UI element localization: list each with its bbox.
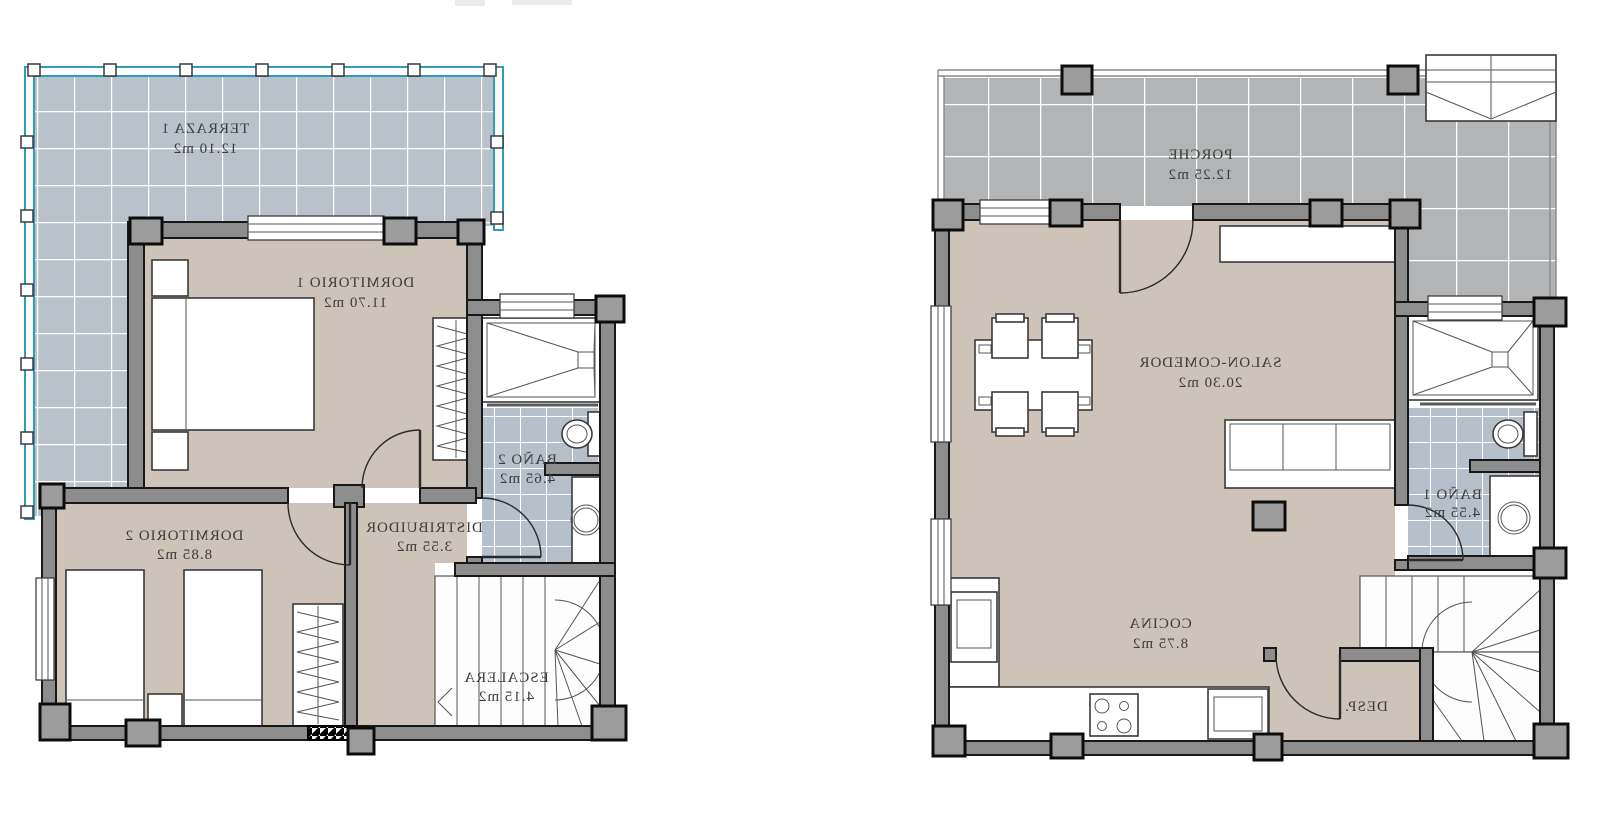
floorplan-sheet: TERRAZA 1 12.10 m2 DORMITORIO 1 11.70 m2… <box>0 0 1600 831</box>
shower-tray <box>482 318 600 402</box>
bathroom-2 <box>482 318 601 563</box>
fridge <box>951 592 997 662</box>
label-dormitorio-1-area: 11.70 m2 <box>323 295 387 311</box>
room-despensa <box>1395 652 1420 741</box>
label-dormitorio-2-area: 8.85 m2 <box>156 547 212 563</box>
hob <box>1090 694 1138 736</box>
porch-post <box>1062 66 1092 94</box>
single-bed <box>66 570 144 732</box>
ground-floor-plan: PORCHE 12.25 m2 SALON-COMEDOR 20.30 m2 B… <box>931 55 1568 760</box>
label-dormitorio-1-name: DORMITORIO 1 <box>296 275 415 291</box>
porch-post <box>1388 66 1418 94</box>
window <box>931 306 951 442</box>
nightstand <box>152 260 188 296</box>
wardrobe <box>293 604 343 726</box>
single-bed <box>184 570 262 732</box>
label-escalera-name: ESCALERA <box>463 670 549 686</box>
label-bano-1-name: BAÑO 1 <box>1422 487 1482 503</box>
window <box>500 294 574 318</box>
kitchen-sink <box>1208 689 1268 739</box>
sideboard <box>1220 226 1396 262</box>
entry-steps <box>1426 55 1556 121</box>
window <box>931 519 951 605</box>
label-bano-1-area: 4.55 m2 <box>1424 505 1480 521</box>
washbasin <box>1490 476 1540 556</box>
hall-corridor <box>357 563 435 726</box>
label-porche-area: 12.25 m2 <box>1168 167 1233 183</box>
label-terraza-1-area: 12.10 m2 <box>173 141 238 157</box>
label-cocina-name: COCINA <box>1128 616 1192 632</box>
column-marker <box>1253 502 1285 530</box>
window <box>1428 296 1502 320</box>
label-terraza-1-name: TERRAZA 1 <box>161 121 250 137</box>
sofa <box>1225 420 1395 488</box>
upper-floor-plan: TERRAZA 1 12.10 m2 DORMITORIO 1 11.70 m2… <box>21 64 626 754</box>
label-salon-comedor-name: SALON-COMEDOR <box>1138 355 1281 371</box>
label-distribuidor-area: 3.55 m2 <box>396 539 452 555</box>
window <box>36 578 54 680</box>
window <box>248 216 384 240</box>
double-bed <box>152 298 314 430</box>
label-distribuidor-name: DISTRIBUIDOR <box>365 520 483 536</box>
label-porche-name: PORCHE <box>1167 147 1232 163</box>
label-cocina-area: 8.75 m2 <box>1132 636 1188 652</box>
shower-tray <box>1408 316 1538 400</box>
floorplan-drawing: TERRAZA 1 12.10 m2 DORMITORIO 1 11.70 m2… <box>0 0 1600 831</box>
label-salon-comedor-area: 20.30 m2 <box>1178 375 1243 391</box>
washbasin <box>571 477 601 563</box>
label-bano-2-name: BAÑO 2 <box>497 452 557 468</box>
nightstand <box>152 432 188 470</box>
label-despensa-name: DESP. <box>1344 699 1388 715</box>
window <box>980 200 1060 224</box>
label-bano-2-area: 4.65 m2 <box>499 471 555 487</box>
label-dormitorio-2-name: DORMITORIO 2 <box>125 528 244 544</box>
label-escalera-area: 4.15 m2 <box>478 689 534 705</box>
cropped-watermark <box>455 0 572 6</box>
